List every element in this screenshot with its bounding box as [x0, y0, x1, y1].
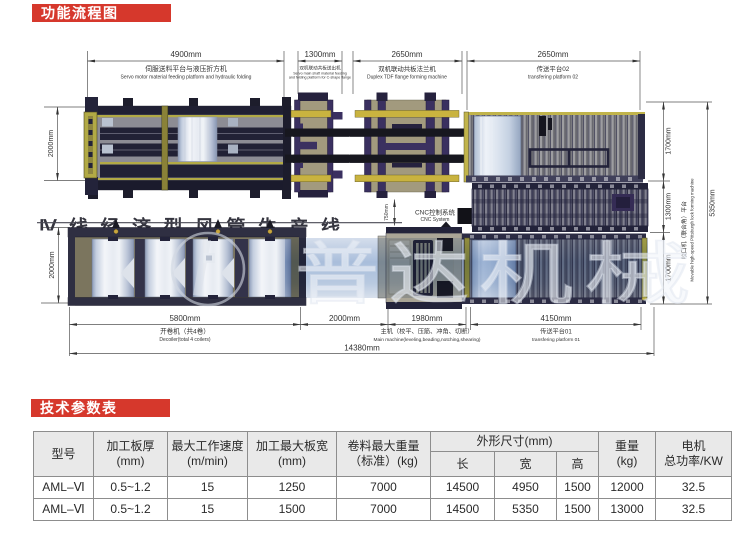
svg-text:transfering platform 02: transfering platform 02: [528, 75, 578, 81]
svg-text:械: 械: [584, 237, 691, 313]
svg-text:普: 普: [295, 237, 379, 313]
svg-text:1300mm: 1300mm: [304, 50, 335, 59]
svg-text:机: 机: [479, 237, 573, 313]
svg-text:主机（校平、压筋、冲角、切断）: 主机（校平、压筋、冲角、切断）: [381, 328, 474, 336]
svg-text:双机联动共板法兰机: 双机联动共板法兰机: [378, 64, 436, 73]
svg-text:2000mm: 2000mm: [49, 251, 56, 278]
svg-text:2650mm: 2650mm: [537, 50, 568, 59]
svg-text:Main machine(leveling,beading,: Main machine(leveling,beading,notching,s…: [374, 337, 481, 343]
svg-text:4900mm: 4900mm: [170, 50, 201, 59]
svg-text:2000mm: 2000mm: [329, 314, 360, 323]
svg-text:5350mm: 5350mm: [710, 189, 717, 216]
svg-text:CNC System: CNC System: [421, 217, 450, 223]
svg-text:伺服送料平台与液压折方机: 伺服送料平台与液压折方机: [145, 64, 227, 73]
svg-text:5800mm: 5800mm: [169, 314, 200, 323]
svg-text:1980mm: 1980mm: [411, 314, 442, 323]
svg-text:双机联动共板送出机: 双机联动共板送出机: [299, 65, 341, 72]
svg-text:transfering platform 01: transfering platform 01: [532, 337, 580, 343]
svg-text:2650mm: 2650mm: [391, 50, 422, 59]
svg-text:2000mm: 2000mm: [48, 130, 55, 157]
svg-text:开卷机（共4卷）: 开卷机（共4卷）: [160, 327, 210, 336]
svg-text:and folding platform for C-sha: and folding platform for C-shape flange: [289, 76, 351, 80]
svg-text:Decoiler(total 4 coilers): Decoiler(total 4 coilers): [159, 337, 210, 343]
svg-text:1300mm: 1300mm: [666, 193, 673, 220]
svg-text:750mm: 750mm: [384, 204, 390, 221]
svg-text:CNC控制系统: CNC控制系统: [415, 208, 456, 217]
svg-text:Servo motor material feeding p: Servo motor material feeding platform an…: [121, 75, 252, 81]
svg-text:传送平台02: 传送平台02: [537, 64, 570, 73]
svg-text:达: 达: [389, 237, 469, 313]
svg-text:1700mm: 1700mm: [666, 127, 673, 154]
svg-text:4150mm: 4150mm: [540, 314, 571, 323]
svg-text:14380mm: 14380mm: [344, 344, 380, 353]
svg-text:Duplex TDF flange forming mach: Duplex TDF flange forming machine: [367, 75, 447, 81]
svg-text:传送平台01: 传送平台01: [540, 328, 572, 336]
